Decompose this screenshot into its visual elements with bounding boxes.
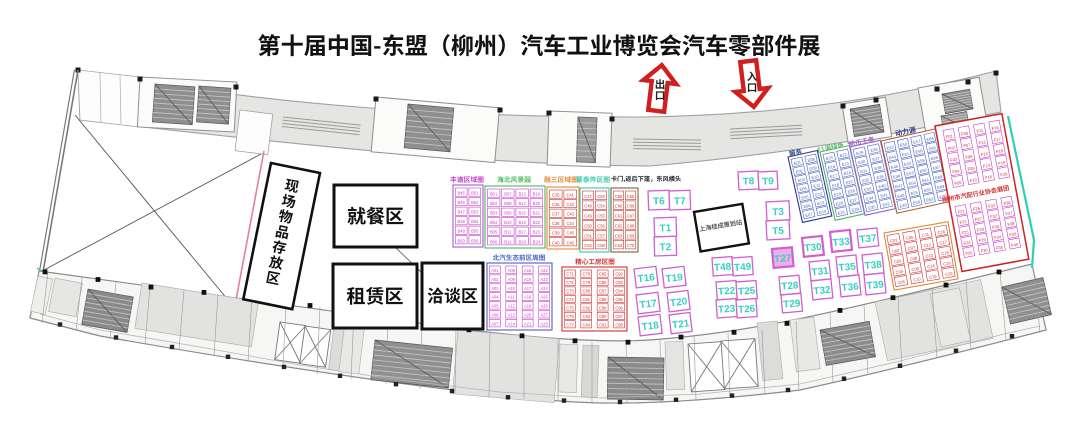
svg-text:C89: C89 [599,306,607,311]
svg-text:A11: A11 [508,295,516,300]
svg-text:C41: C41 [566,193,574,198]
svg-text:T33: T33 [832,236,851,249]
svg-text:C53: C53 [597,194,605,199]
svg-text:T8: T8 [742,176,755,188]
svg-text:C39: C39 [552,231,560,236]
svg-text:A15: A15 [524,268,532,273]
svg-text:A28: A28 [540,321,548,326]
svg-text:B20: B20 [533,201,541,206]
svg-text:C94: C94 [615,289,623,294]
svg-text:A01: A01 [491,268,499,273]
svg-text:C42: C42 [566,202,574,207]
svg-text:A03: A03 [491,286,499,291]
svg-text:T20: T20 [670,296,689,309]
svg-text:B18: B18 [518,239,526,244]
svg-text:C58: C58 [597,243,605,248]
svg-text:C72: C72 [566,280,574,285]
svg-text:A09: A09 [508,277,516,282]
svg-text:C85: C85 [599,272,607,277]
svg-text:C49: C49 [584,214,592,219]
svg-text:A10: A10 [508,286,516,291]
svg-text:C36: C36 [552,202,560,207]
svg-text:T19: T19 [665,272,684,285]
svg-text:T26: T26 [738,304,756,316]
svg-text:B11: B11 [504,230,512,235]
svg-text:B56: B56 [471,238,479,243]
svg-text:C76: C76 [566,314,574,319]
svg-text:C93: C93 [615,280,623,285]
svg-text:B13: B13 [518,192,526,197]
svg-text:B10: B10 [504,220,512,225]
svg-text:T5: T5 [772,226,785,238]
svg-text:B52: B52 [471,200,479,205]
svg-text:A24: A24 [540,286,548,291]
svg-text:B21: B21 [533,211,541,216]
svg-text:C75: C75 [566,306,574,311]
svg-text:C40: C40 [552,240,560,245]
svg-text:C87: C87 [599,289,607,294]
svg-text:B48: B48 [458,219,466,224]
svg-text:C77: C77 [566,323,574,328]
svg-text:T35: T35 [838,261,857,274]
svg-text:T36: T36 [841,281,860,294]
svg-text:C56: C56 [597,224,605,229]
svg-text:B46: B46 [458,200,466,205]
svg-text:T39: T39 [866,279,885,292]
svg-text:A05: A05 [491,304,499,309]
svg-text:A18: A18 [524,295,532,300]
svg-text:B03: B03 [490,211,498,216]
svg-text:A07: A07 [491,321,499,326]
svg-text:A23: A23 [540,277,548,282]
svg-text:B17: B17 [518,230,526,235]
svg-text:T32: T32 [813,285,832,298]
svg-text:B07: B07 [504,192,512,197]
svg-text:B16: B16 [518,220,526,225]
svg-text:C47: C47 [584,194,592,199]
svg-text:C81: C81 [583,297,591,302]
svg-text:B50: B50 [458,238,466,243]
svg-text:T27: T27 [774,253,793,265]
svg-text:C68: C68 [627,224,635,229]
svg-text:B12: B12 [504,239,512,244]
svg-text:B01: B01 [490,192,498,197]
svg-text:A20: A20 [524,313,532,318]
svg-text:C96: C96 [615,306,623,311]
svg-text:C61: C61 [615,214,623,219]
svg-text:C46: C46 [566,240,574,245]
svg-text:C55: C55 [597,214,605,219]
svg-text:T16: T16 [637,272,656,285]
svg-text:B49: B49 [458,229,466,234]
svg-text:B09: B09 [504,211,512,216]
svg-text:A12: A12 [508,304,516,309]
svg-text:C74: C74 [566,297,574,302]
svg-text:T30: T30 [804,242,823,255]
svg-text:T21: T21 [672,318,691,331]
svg-text:T48: T48 [714,262,732,274]
svg-text:A17: A17 [524,286,532,291]
svg-text:C73: C73 [566,289,574,294]
svg-text:B15: B15 [518,211,526,216]
svg-text:A02: A02 [491,277,499,282]
svg-text:B51: B51 [471,191,479,196]
svg-text:C91: C91 [599,323,607,328]
svg-text:C98: C98 [615,323,623,328]
svg-text:A27: A27 [540,313,548,318]
svg-text:B04: B04 [490,220,498,225]
svg-text:A04: A04 [491,295,499,300]
svg-text:A06: A06 [491,313,499,318]
svg-text:B22: B22 [533,220,541,225]
svg-text:C48: C48 [584,204,592,209]
svg-text:T18: T18 [641,320,660,333]
svg-text:C86: C86 [599,280,607,285]
svg-text:C37: C37 [552,212,560,217]
svg-text:T6: T6 [653,196,665,207]
svg-text:A21: A21 [524,321,532,326]
svg-text:C92: C92 [615,272,623,277]
svg-text:T37: T37 [859,233,878,246]
svg-text:T22: T22 [718,286,736,298]
svg-text:B02: B02 [490,201,498,206]
svg-text:B08: B08 [504,201,512,206]
svg-text:C54: C54 [597,204,605,209]
svg-text:B24: B24 [533,239,541,244]
svg-text:A16: A16 [524,277,532,282]
svg-text:T1: T1 [659,223,671,234]
svg-text:T29: T29 [783,298,802,310]
svg-text:B54: B54 [471,219,479,224]
svg-text:T28: T28 [781,280,800,292]
svg-text:C67: C67 [627,214,635,219]
svg-text:C83: C83 [583,314,591,319]
svg-text:C43: C43 [566,212,574,217]
svg-text:T17: T17 [639,298,658,311]
svg-text:B45: B45 [458,191,466,196]
svg-text:A19: A19 [524,304,532,309]
svg-text:C70: C70 [627,243,635,248]
svg-text:B05: B05 [490,230,498,235]
svg-text:C90: C90 [599,314,607,319]
svg-text:A25: A25 [540,295,548,300]
svg-text:C71: C71 [566,272,574,277]
svg-text:C66: C66 [627,204,635,209]
svg-text:A26: A26 [540,304,548,309]
svg-text:A14: A14 [508,321,516,326]
svg-text:C88: C88 [599,297,607,302]
svg-text:C80: C80 [583,289,591,294]
svg-text:T25: T25 [738,286,756,298]
svg-text:C44: C44 [566,221,574,226]
svg-text:C51: C51 [584,233,592,238]
svg-text:B06: B06 [490,239,498,244]
svg-text:C97: C97 [615,314,623,319]
svg-text:A13: A13 [508,313,516,318]
svg-text:C57: C57 [597,233,605,238]
svg-text:C64: C64 [615,243,623,248]
svg-text:B23: B23 [533,230,541,235]
svg-text:C35: C35 [552,193,560,198]
svg-text:T2: T2 [659,242,671,253]
svg-text:C45: C45 [566,231,574,236]
svg-text:C84: C84 [583,323,591,328]
svg-text:C52: C52 [584,243,592,248]
svg-text:C38: C38 [552,221,560,226]
svg-text:T3: T3 [772,207,785,219]
svg-text:C69: C69 [627,233,635,238]
svg-text:B14: B14 [518,201,526,206]
svg-text:B19: B19 [533,192,541,197]
svg-text:C59: C59 [615,194,623,199]
svg-text:C65: C65 [627,194,635,199]
svg-text:T7: T7 [674,196,686,207]
svg-text:C79: C79 [583,280,591,285]
svg-text:C95: C95 [615,297,623,302]
svg-text:C60: C60 [615,204,623,209]
svg-text:T31: T31 [811,266,830,279]
svg-text:T38: T38 [864,259,883,272]
svg-text:B47: B47 [458,210,466,215]
svg-text:C78: C78 [583,272,591,277]
svg-text:T23: T23 [718,304,736,316]
svg-text:C82: C82 [583,306,591,311]
svg-text:C62: C62 [615,224,623,229]
svg-text:A22: A22 [540,268,548,273]
svg-text:B55: B55 [471,229,479,234]
svg-text:C63: C63 [615,233,623,238]
svg-text:T49: T49 [734,262,752,274]
svg-text:T9: T9 [762,176,775,188]
svg-text:C50: C50 [584,224,592,229]
svg-text:B53: B53 [471,210,479,215]
svg-text:A08: A08 [508,268,516,273]
